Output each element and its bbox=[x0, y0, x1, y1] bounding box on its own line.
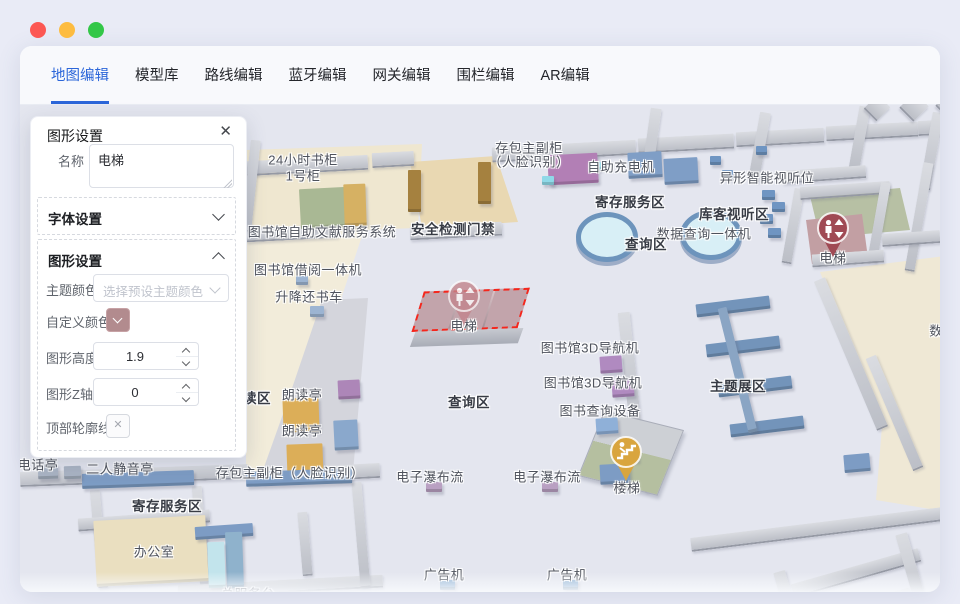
map-label: 图书馆借阅一体机 bbox=[254, 260, 362, 279]
top-outline-checkbox[interactable]: ✕ bbox=[106, 414, 130, 438]
map-label: 库客视听区 bbox=[699, 203, 769, 223]
map-object[interactable] bbox=[207, 542, 226, 589]
map-label: 寄存服务区 bbox=[595, 191, 665, 211]
map-label: 自助充电机 bbox=[587, 157, 655, 176]
map-label: 主题展区 bbox=[710, 375, 766, 395]
shape-height-label: 图形高度 bbox=[46, 348, 98, 367]
tab-bluetooth-edit[interactable]: 蓝牙编辑 bbox=[289, 46, 347, 104]
wall-segment bbox=[826, 122, 919, 142]
map-object[interactable] bbox=[695, 296, 770, 318]
map-label: 广告机 bbox=[424, 565, 465, 584]
map-object[interactable] bbox=[225, 532, 244, 589]
map-object[interactable] bbox=[310, 306, 324, 317]
map-label: 1号柜 bbox=[286, 166, 321, 185]
panel-title: 图形设置 bbox=[47, 126, 103, 146]
decrement-button[interactable] bbox=[176, 392, 198, 405]
chevron-up-icon[interactable] bbox=[212, 252, 225, 265]
map-label: 查询区 bbox=[448, 391, 490, 411]
map-label: 图书馆3D导航机 bbox=[544, 373, 643, 392]
tab-model-library[interactable]: 模型库 bbox=[135, 46, 179, 104]
map-label: （人脸识别） bbox=[488, 152, 569, 171]
map-label: 广告机 bbox=[547, 565, 588, 584]
map-label: 电子瀑布流 bbox=[513, 467, 581, 486]
map-object[interactable] bbox=[64, 466, 81, 480]
tab-gateway-edit[interactable]: 网关编辑 bbox=[373, 46, 431, 104]
wall-segment bbox=[820, 588, 912, 592]
increment-button[interactable] bbox=[176, 379, 198, 393]
custom-color-label: 自定义颜色 bbox=[46, 312, 111, 331]
tab-fence-edit[interactable]: 围栏编辑 bbox=[457, 46, 515, 104]
map-label: 图书馆自助文献服务系统 bbox=[248, 222, 397, 241]
elevator-pin[interactable] bbox=[813, 211, 853, 259]
top-outline-label: 顶部轮廓线 bbox=[46, 418, 111, 437]
map-label: 数据查询一体机 bbox=[657, 224, 752, 243]
map-object[interactable] bbox=[408, 170, 421, 212]
chevron-down-icon[interactable] bbox=[212, 208, 225, 221]
map-object[interactable] bbox=[595, 417, 618, 434]
map-object[interactable] bbox=[599, 355, 622, 373]
map-label: 朗读亭 bbox=[282, 421, 323, 440]
editor-tabbar: 地图编辑模型库路线编辑蓝牙编辑网关编辑围栏编辑AR编辑 bbox=[20, 46, 940, 105]
zoom-window-icon[interactable] bbox=[88, 22, 104, 38]
map-object[interactable] bbox=[338, 379, 361, 399]
chevron-down-icon bbox=[113, 314, 123, 324]
tab-map-edit[interactable]: 地图编辑 bbox=[51, 46, 109, 104]
chevron-down-icon bbox=[209, 282, 220, 293]
shape-section-title[interactable]: 图形设置 bbox=[48, 250, 102, 270]
map-label: 存包主副柜（人脸识别） bbox=[216, 463, 365, 482]
map-label: 异形智能视听位 bbox=[720, 168, 815, 187]
map-object[interactable] bbox=[542, 176, 554, 185]
map-label: 图书馆3D导航机 bbox=[541, 338, 640, 357]
map-label: 安全检测门禁 bbox=[411, 218, 495, 238]
map-label: 朗读亭 bbox=[282, 385, 323, 404]
wall-segment bbox=[899, 104, 929, 122]
map-object[interactable] bbox=[195, 523, 254, 540]
custom-color-swatch[interactable] bbox=[106, 308, 130, 332]
stairs-pin[interactable] bbox=[606, 435, 646, 483]
font-settings-section: 字体设置 bbox=[37, 197, 236, 235]
wall-segment bbox=[297, 512, 313, 577]
shape-z-input[interactable] bbox=[93, 378, 177, 406]
shape-settings-panel: 图形设置 ✕ 名称 电梯 字体设置 图形设置 主题颜色 选择预设主题颜色 自定义… bbox=[30, 116, 247, 458]
theme-color-select[interactable]: 选择预设主题颜色 bbox=[93, 274, 229, 302]
tab-route-edit[interactable]: 路线编辑 bbox=[205, 46, 263, 104]
map-object[interactable] bbox=[756, 146, 767, 155]
map-object[interactable] bbox=[762, 190, 775, 200]
map-label: 查询区 bbox=[625, 233, 667, 253]
elevator-seam bbox=[482, 291, 495, 327]
map-object[interactable] bbox=[768, 228, 781, 238]
map-label: 升降还书车 bbox=[275, 287, 343, 306]
map-object[interactable] bbox=[333, 419, 359, 450]
theme-color-label: 主题颜色 bbox=[46, 280, 98, 299]
theme-color-placeholder: 选择预设主题颜色 bbox=[103, 281, 203, 300]
name-input[interactable]: 电梯 bbox=[89, 144, 234, 188]
decrement-button[interactable] bbox=[176, 356, 198, 369]
map-object[interactable] bbox=[663, 157, 698, 185]
map-label: 图书查询设备 bbox=[559, 401, 640, 420]
map-object[interactable] bbox=[718, 307, 758, 433]
map-label: 总服务台 bbox=[221, 584, 275, 593]
close-icon[interactable]: ✕ bbox=[219, 124, 232, 139]
map-label: 寄存服务区 bbox=[132, 495, 202, 515]
map-label: 办公室 bbox=[134, 542, 175, 561]
map-label: 二人静音亭 bbox=[86, 459, 154, 478]
close-window-icon[interactable] bbox=[30, 22, 46, 38]
shape-height-input[interactable] bbox=[93, 342, 177, 370]
increment-button[interactable] bbox=[176, 343, 198, 357]
map-object[interactable] bbox=[710, 156, 721, 165]
minimize-window-icon[interactable] bbox=[59, 22, 75, 38]
map-object[interactable] bbox=[843, 453, 870, 473]
wall-segment bbox=[736, 128, 825, 148]
map-object[interactable] bbox=[705, 336, 780, 358]
map-object[interactable] bbox=[772, 202, 785, 212]
map-label: 电子瀑布流 bbox=[396, 467, 464, 486]
wall-segment bbox=[905, 162, 934, 272]
map-object[interactable] bbox=[729, 416, 804, 438]
window-controls bbox=[30, 22, 104, 38]
shape-z-label: 图形Z轴 bbox=[46, 384, 93, 403]
wall-segment bbox=[372, 151, 415, 168]
map-object[interactable] bbox=[343, 184, 366, 227]
tab-ar-edit[interactable]: AR编辑 bbox=[541, 46, 590, 104]
map-label: 数 bbox=[929, 321, 940, 340]
elevator-pin-selected[interactable] bbox=[444, 279, 484, 327]
name-label: 名称 bbox=[58, 151, 84, 170]
font-section-title[interactable]: 字体设置 bbox=[48, 208, 102, 228]
wall-segment bbox=[351, 482, 370, 588]
wall-segment bbox=[882, 230, 940, 247]
shape-settings-section: 图形设置 主题颜色 选择预设主题颜色 自定义颜色 图形高度 图形Z轴 bbox=[37, 239, 236, 451]
